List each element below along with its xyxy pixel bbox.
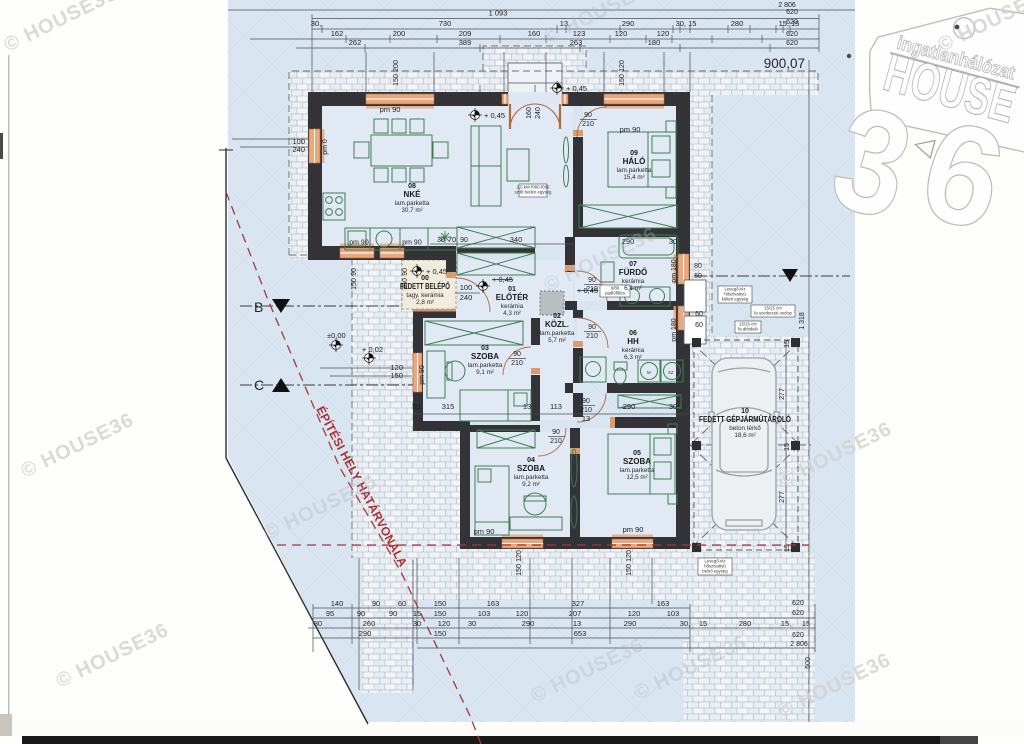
svg-text:262: 262 (349, 38, 362, 47)
svg-text:90: 90 (588, 277, 596, 284)
svg-text:210: 210 (580, 407, 592, 414)
svg-text:120: 120 (619, 60, 626, 72)
svg-text:620: 620 (786, 40, 798, 47)
svg-text:4,3 m²: 4,3 m² (503, 310, 521, 317)
svg-text:263: 263 (570, 38, 583, 47)
svg-text:pm 180: pm 180 (671, 318, 678, 341)
svg-text:HÁLÓ: HÁLÓ (623, 157, 646, 166)
svg-text:210: 210 (511, 360, 523, 367)
svg-text:kültéri egység: kültéri egység (722, 297, 749, 302)
svg-text:30: 30 (669, 237, 677, 246)
svg-text:340: 340 (510, 235, 523, 244)
svg-text:60: 60 (695, 311, 703, 318)
svg-text:90: 90 (372, 599, 380, 608)
svg-text:240: 240 (292, 145, 305, 154)
svg-text:12,5 m²: 12,5 m² (626, 474, 647, 481)
svg-text:30: 30 (468, 619, 476, 628)
svg-text:90: 90 (588, 324, 596, 331)
svg-text:ELŐTÉR: ELŐTÉR (496, 293, 529, 302)
svg-text:1 318: 1 318 (799, 312, 806, 330)
svg-text:01: 01 (508, 286, 516, 293)
svg-text:150: 150 (434, 629, 447, 638)
svg-text:90: 90 (582, 398, 590, 405)
svg-text:08: 08 (408, 183, 416, 190)
svg-text:13: 13 (582, 414, 590, 423)
svg-text:260: 260 (363, 619, 376, 628)
svg-text:30: 30 (314, 619, 322, 628)
svg-text:120: 120 (516, 550, 523, 562)
svg-text:620: 620 (786, 31, 798, 38)
svg-text:120: 120 (626, 550, 633, 562)
svg-text:277: 277 (779, 491, 786, 503)
svg-text:SZOBA: SZOBA (517, 464, 545, 473)
svg-text:90: 90 (584, 112, 592, 119)
svg-text:150: 150 (351, 278, 358, 290)
svg-text:120: 120 (516, 609, 529, 618)
svg-text:07: 07 (629, 261, 637, 268)
svg-text:9,1 m²: 9,1 m² (476, 369, 494, 376)
svg-text:389: 389 (459, 38, 472, 47)
svg-text:15: 15 (413, 609, 421, 618)
svg-text:B: B (254, 299, 263, 315)
svg-text:13: 13 (573, 619, 581, 628)
svg-text:30: 30 (412, 402, 420, 411)
svg-text:lam.parketta: lam.parketta (540, 330, 575, 337)
svg-text:pm 90: pm 90 (474, 527, 495, 536)
svg-text:150: 150 (393, 74, 400, 86)
svg-text:pm 90: pm 90 (419, 365, 426, 385)
svg-text:NKÉ: NKÉ (404, 190, 422, 199)
svg-text:03: 03 (481, 345, 489, 352)
svg-text:kerámia: kerámia (501, 303, 524, 310)
svg-text:30: 30 (437, 237, 445, 244)
svg-text:150: 150 (402, 278, 409, 290)
svg-text:315: 315 (442, 402, 455, 411)
svg-text:lam.parketta: lam.parketta (617, 167, 652, 174)
svg-text:pm 90: pm 90 (620, 125, 641, 134)
svg-text:beton térkő: beton térkő (729, 425, 761, 432)
svg-text:pm 0: pm 0 (322, 139, 329, 155)
svg-text:04: 04 (527, 457, 535, 464)
svg-text:SZ: SZ (668, 370, 674, 375)
svg-text:150: 150 (434, 599, 447, 608)
svg-text:240: 240 (460, 293, 473, 302)
svg-text:15,: 15, (781, 619, 791, 628)
svg-text:60: 60 (398, 599, 406, 608)
svg-text:05: 05 (633, 450, 641, 457)
svg-text:163: 163 (657, 599, 670, 608)
svg-text:277: 277 (779, 388, 786, 400)
svg-text:210: 210 (586, 286, 598, 293)
svg-text:180: 180 (648, 38, 661, 47)
svg-text:2 806: 2 806 (778, 2, 796, 9)
svg-text:13: 13 (564, 235, 572, 244)
svg-text:18,6 m²: 18,6 m² (734, 432, 755, 439)
svg-text:163: 163 (487, 599, 500, 608)
svg-text:90: 90 (389, 609, 397, 618)
svg-text:620: 620 (786, 9, 798, 16)
svg-text:+ 0,45: + 0,45 (484, 111, 505, 120)
svg-text:653: 653 (574, 629, 587, 638)
svg-text:113: 113 (550, 402, 562, 411)
svg-text:fa áthidaló: fa áthidaló (738, 327, 758, 332)
svg-text:150: 150 (390, 371, 403, 380)
svg-text:15: 15 (784, 443, 791, 451)
svg-text:±0,00: ±0,00 (327, 331, 346, 340)
svg-text:tagy. kerámia: tagy. kerámia (406, 292, 444, 299)
svg-text:06: 06 (629, 330, 637, 337)
svg-text:pm 90: pm 90 (623, 525, 644, 534)
svg-text:80: 80 (694, 263, 702, 270)
svg-text:lam.parketta: lam.parketta (514, 474, 549, 481)
svg-text:6,3 m²: 6,3 m² (624, 354, 642, 361)
svg-text:90: 90 (351, 268, 358, 276)
svg-text:150: 150 (434, 609, 447, 618)
svg-text:60: 60 (694, 273, 702, 280)
svg-text:02: 02 (553, 313, 561, 320)
svg-text:pm 90: pm 90 (349, 240, 369, 247)
svg-text:100: 100 (460, 283, 473, 292)
svg-text:150: 150 (619, 74, 626, 86)
svg-text:620: 620 (792, 632, 804, 639)
svg-text:+ 0,45: + 0,45 (566, 84, 587, 93)
svg-text:207: 207 (569, 609, 582, 618)
svg-text:belső egység: belső egység (702, 569, 728, 574)
svg-text:09: 09 (630, 150, 638, 157)
svg-text:209: 209 (459, 29, 472, 38)
svg-text:500: 500 (805, 657, 812, 669)
svg-text:210: 210 (582, 121, 594, 128)
svg-text:327: 327 (572, 599, 585, 608)
svg-text:200: 200 (393, 60, 400, 72)
svg-text:13: 13 (523, 402, 531, 411)
svg-text:lam.parketta: lam.parketta (395, 200, 430, 207)
svg-text:120: 120 (438, 619, 451, 628)
svg-text:30: 30 (669, 402, 677, 411)
svg-text:30,: 30, (311, 19, 321, 28)
svg-text:290: 290 (623, 402, 636, 411)
svg-text:30: 30 (413, 619, 421, 628)
svg-text:2 806: 2 806 (790, 641, 808, 648)
svg-text:160: 160 (528, 29, 541, 38)
svg-text:90: 90 (460, 237, 468, 244)
svg-text:5,7 m²: 5,7 m² (548, 337, 566, 344)
svg-text:290: 290 (624, 619, 637, 628)
svg-text:lam.parketta: lam.parketta (620, 467, 655, 474)
svg-text:210: 210 (550, 438, 562, 445)
svg-text:290: 290 (359, 629, 372, 638)
svg-text:70: 70 (448, 235, 456, 244)
svg-text:HH: HH (627, 337, 639, 346)
svg-text:+ 0,02: + 0,02 (362, 345, 383, 354)
svg-text:kerámia: kerámia (622, 278, 645, 285)
svg-text:620: 620 (792, 600, 804, 607)
svg-text:fa szerkezeti oszlop: fa szerkezeti oszlop (754, 311, 792, 316)
svg-text:6,1 m²: 6,1 m² (624, 285, 642, 292)
svg-text:kerámia: kerámia (622, 347, 645, 354)
svg-text:pm 90: pm 90 (402, 240, 422, 247)
svg-text:C: C (254, 377, 264, 393)
svg-text:9,2 m²: 9,2 m² (522, 481, 540, 488)
svg-text:90: 90 (357, 609, 365, 618)
svg-text:30,: 30, (680, 619, 690, 628)
svg-text:15: 15 (784, 340, 791, 348)
svg-text:00: 00 (421, 275, 429, 282)
svg-text:+ 0,45: + 0,45 (426, 267, 447, 276)
svg-text:60: 60 (695, 322, 703, 329)
svg-text:pm 90: pm 90 (380, 105, 401, 114)
svg-text:90: 90 (513, 351, 521, 358)
svg-text:FÜRDŐ: FÜRDŐ (619, 268, 647, 277)
svg-text:10: 10 (741, 408, 749, 415)
svg-text:150: 150 (516, 564, 523, 576)
svg-text:90: 90 (552, 429, 560, 436)
svg-text:+ 0,45: + 0,45 (492, 275, 513, 284)
svg-text:SZOBA: SZOBA (623, 457, 651, 466)
svg-text:lam.parketta: lam.parketta (468, 362, 503, 369)
svg-text:280: 280 (739, 619, 752, 628)
svg-text:240: 240 (535, 107, 542, 119)
svg-text:150: 150 (626, 564, 633, 576)
svg-text:210: 210 (586, 333, 598, 340)
svg-text:290: 290 (622, 19, 635, 28)
svg-text:90: 90 (402, 268, 409, 276)
svg-text:padlófűtés: padlófűtés (605, 291, 625, 296)
svg-text:280: 280 (731, 19, 744, 28)
svg-text:30, 15: 30, 15 (676, 19, 697, 28)
svg-text:162: 162 (331, 29, 344, 38)
svg-text:730: 730 (439, 19, 452, 28)
svg-text:1 093: 1 093 (489, 9, 508, 18)
svg-text:200: 200 (393, 29, 406, 38)
svg-text:120: 120 (657, 29, 670, 38)
svg-text:160: 160 (526, 107, 533, 119)
svg-text:KÖZL.: KÖZL. (545, 320, 569, 329)
svg-text:30,7 m²: 30,7 m² (401, 207, 422, 214)
svg-text:15,4 m²: 15,4 m² (623, 174, 644, 181)
svg-text:2,8 m²: 2,8 m² (416, 299, 434, 306)
svg-text:620: 620 (786, 19, 798, 26)
svg-text:120: 120 (628, 609, 641, 618)
svg-text:120: 120 (615, 29, 628, 38)
svg-text:103: 103 (667, 609, 680, 618)
svg-text:FEDETT GÉPJÁRMŰTÁROLÓ: FEDETT GÉPJÁRMŰTÁROLÓ (699, 415, 791, 424)
svg-text:140: 140 (331, 599, 344, 608)
svg-text:M: M (647, 370, 651, 375)
svg-text:15: 15 (699, 619, 707, 628)
svg-text:290: 290 (522, 619, 535, 628)
svg-text:620: 620 (792, 610, 804, 617)
svg-text:szólt betlén egység: szólt betlén egység (515, 190, 552, 195)
svg-text:SZOBA: SZOBA (471, 352, 499, 361)
svg-text:103: 103 (478, 609, 491, 618)
svg-text:900,07: 900,07 (764, 56, 805, 71)
svg-text:95: 95 (326, 609, 334, 618)
svg-text:pm 180: pm 180 (671, 259, 678, 282)
